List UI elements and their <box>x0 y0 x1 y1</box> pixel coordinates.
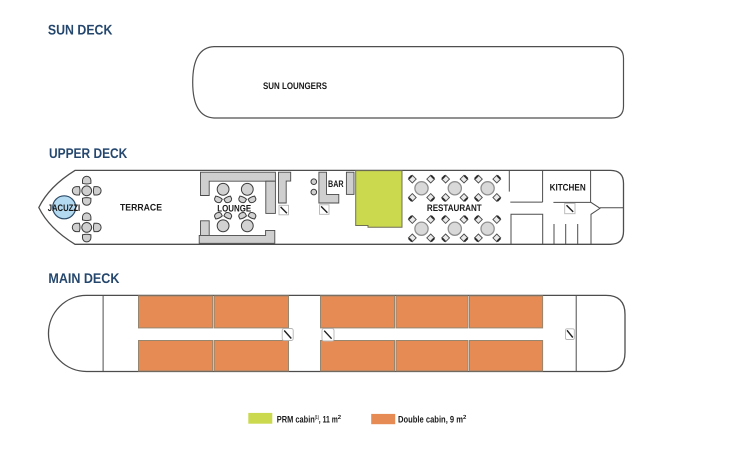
svg-text:SUN LOUNGERS: SUN LOUNGERS <box>263 81 327 92</box>
svg-text:MAIN DECK: MAIN DECK <box>48 270 119 286</box>
svg-text:JACUZZI: JACUZZI <box>48 203 80 214</box>
svg-text:RESTAURANT: RESTAURANT <box>427 203 482 214</box>
svg-text:BAR: BAR <box>328 179 344 190</box>
svg-text:Double cabin, 9 m2: Double cabin, 9 m2 <box>398 414 467 425</box>
svg-text:TERRACE: TERRACE <box>120 203 162 214</box>
svg-text:LOUNGE: LOUNGE <box>217 203 251 214</box>
svg-text:UPPER DECK: UPPER DECK <box>49 145 127 161</box>
svg-text:SUN DECK: SUN DECK <box>48 22 113 38</box>
svg-text:KITCHEN: KITCHEN <box>550 183 586 194</box>
svg-text:PRM cabin(1), 11 m2: PRM cabin(1), 11 m2 <box>277 414 342 425</box>
